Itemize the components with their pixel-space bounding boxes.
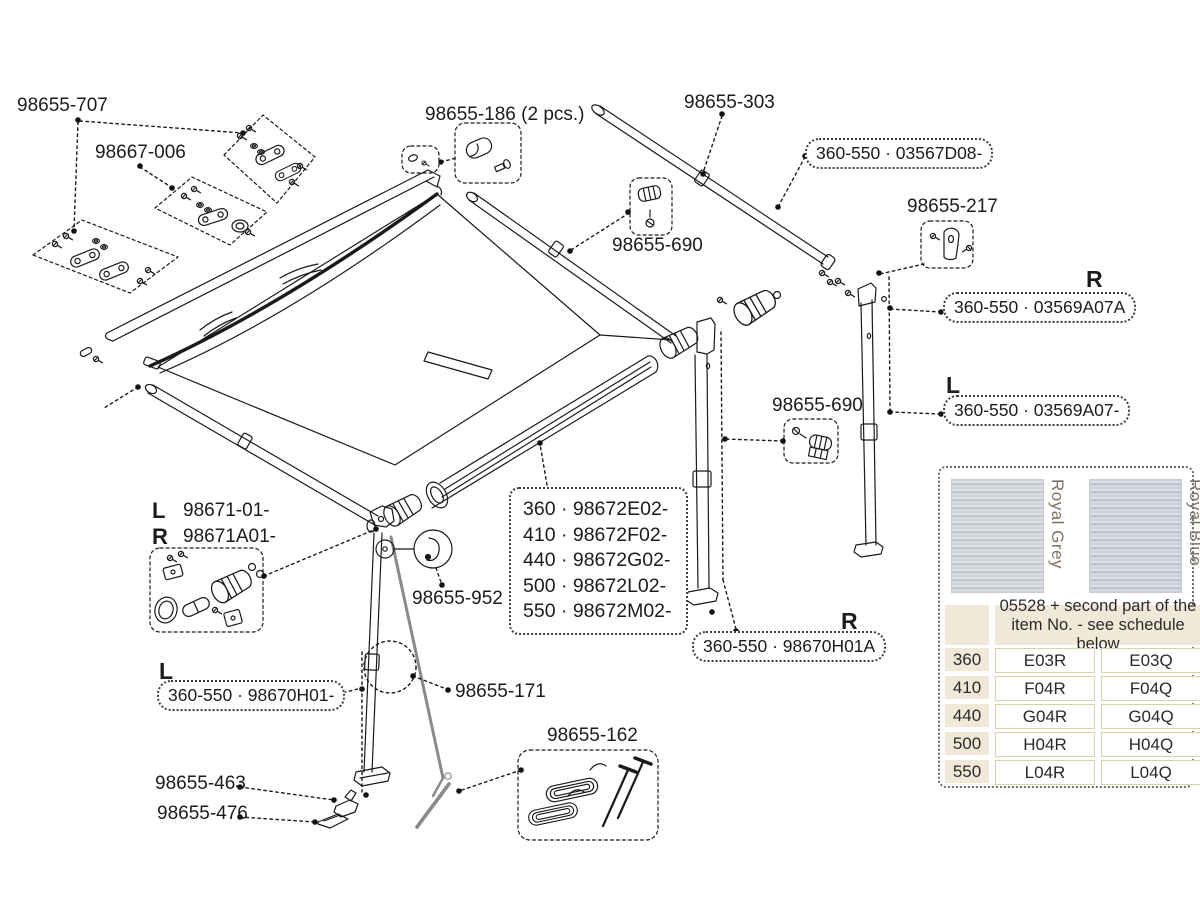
hardware-group-left <box>33 220 178 293</box>
part-box-217 <box>921 221 973 268</box>
foot-plate-476 <box>318 814 348 828</box>
left-mark-671: L <box>152 498 165 524</box>
awning-parts-diagram: 98655-707 98667-006 98655-186 (2 pcs.) 9… <box>0 0 1200 900</box>
part-label-98655-186: 98655-186 (2 pcs.) <box>425 105 585 126</box>
tie-down-rope <box>391 537 451 827</box>
part-label-98655-690-lower: 98655-690 <box>772 396 863 417</box>
part-label-98667-006: 98667-006 <box>95 143 186 164</box>
part-code-box-03567d08: 360-550 · 03567D08- <box>805 138 993 169</box>
part-box-671 <box>150 548 263 632</box>
table-cell: G04R <box>995 704 1095 729</box>
part-box-186-parts <box>408 135 512 171</box>
size-code-table: 05528 + second part of the item No. - se… <box>945 605 1192 785</box>
rope-peg-kit-parts <box>527 758 651 827</box>
size-code-410: 410 · 98672F02- <box>523 523 672 549</box>
hardware-group-left-parts <box>52 233 154 284</box>
royal-blue-fabric-image <box>1089 479 1182 593</box>
roller-tube-size-codes-box: 360 · 98672E02- 410 · 98672F02- 440 · 98… <box>509 487 688 635</box>
royal-grey-label: Royal Grey <box>1044 479 1067 593</box>
hardware-group-middle-parts <box>181 186 254 235</box>
part-label-98655-707: 98655-707 <box>17 96 108 117</box>
fabric-swatches: Royal Grey Royal Blue <box>940 468 1192 593</box>
part-label-98671a01: 98671A01- <box>183 527 276 548</box>
swatch-royal-grey: Royal Grey <box>951 479 1067 593</box>
awning-fabric <box>143 194 672 465</box>
table-cell: E03R <box>995 648 1095 673</box>
hardware-group-top <box>224 115 315 203</box>
part-label-98655-476: 98655-476 <box>157 804 248 825</box>
exploded-leg <box>835 278 886 557</box>
leader-dots <box>71 111 944 825</box>
table-corner-cell <box>945 605 989 645</box>
part-code-box-98670h01a: 360-550 · 98670H01A <box>692 631 886 662</box>
part-label-98671-01: 98671-01- <box>183 501 270 522</box>
magnifier-detail <box>376 530 452 568</box>
table-header: 05528 + second part of the item No. - se… <box>995 605 1200 645</box>
part-box-217-parts <box>930 228 971 259</box>
royal-grey-fabric-image <box>951 479 1044 593</box>
row-label: 500 <box>945 732 989 755</box>
table-cell: L04R <box>995 760 1095 785</box>
part-label-98655-952: 98655-952 <box>412 589 503 610</box>
table-cell: L04Q <box>1101 760 1200 785</box>
row-label: 440 <box>945 704 989 727</box>
foot-bracket-463 <box>334 790 358 817</box>
table-cell: G04Q <box>1101 704 1200 729</box>
part-label-98655-217: 98655-217 <box>907 197 998 218</box>
table-cell: H04R <box>995 732 1095 757</box>
part-code-box-03569a07: 360-550 · 03569A07- <box>943 395 1130 426</box>
part-box-690b-parts <box>793 428 833 461</box>
part-code-box-03569a07a: 360-550 · 03569A07A <box>943 292 1136 323</box>
size-code-500: 500 · 98672L02- <box>523 574 672 600</box>
part-label-98655-463: 98655-463 <box>155 774 246 795</box>
size-code-440: 440 · 98672G02- <box>523 548 672 574</box>
row-label: 360 <box>945 648 989 671</box>
fabric-code-panel: Royal Grey Royal Blue 05528 + second par… <box>938 466 1194 788</box>
part-label-98655-690-upper: 98655-690 <box>612 236 703 257</box>
table-cell: E03Q <box>1101 648 1200 673</box>
part-box-690a-parts <box>637 185 661 227</box>
part-label-98655-162: 98655-162 <box>547 726 638 747</box>
left-support-leg <box>354 490 425 786</box>
royal-blue-label: Royal Blue <box>1182 479 1200 593</box>
table-cell: F04Q <box>1101 676 1200 701</box>
part-code-box-98670h01: 360-550 · 98670H01- <box>157 680 345 711</box>
row-label: 410 <box>945 676 989 699</box>
tension-rafter-tube <box>590 103 837 286</box>
right-mark-a: R <box>1086 266 1103 293</box>
size-code-550: 550 · 98672M02- <box>523 599 672 625</box>
part-box-671-parts <box>152 551 263 626</box>
size-code-360: 360 · 98672E02- <box>523 497 672 523</box>
table-cell: F04R <box>995 676 1095 701</box>
row-label: 550 <box>945 760 989 783</box>
part-label-98655-303: 98655-303 <box>684 93 775 114</box>
swatch-royal-blue: Royal Blue <box>1089 479 1200 593</box>
part-label-98655-171: 98655-171 <box>455 682 546 703</box>
right-mark-671: R <box>152 524 168 550</box>
table-cell: H04Q <box>1101 732 1200 757</box>
